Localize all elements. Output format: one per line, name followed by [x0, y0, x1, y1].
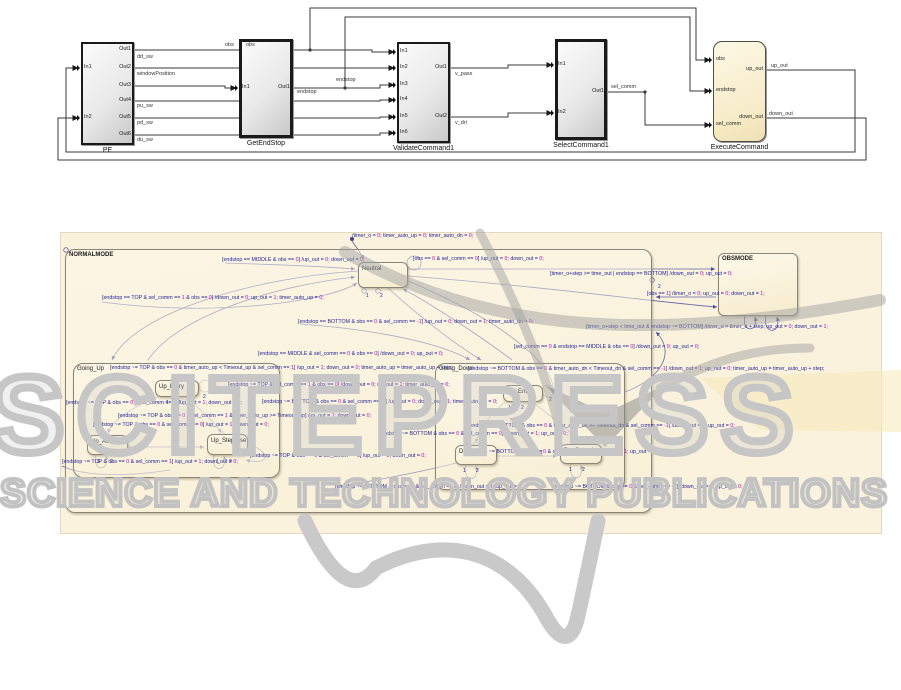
signal-label-du_sw: du_sw: [137, 138, 153, 144]
signal-label-pd_sw: pd_sw: [137, 121, 153, 127]
junction-number: 2: [203, 395, 206, 400]
signal-label-endstop: endstop: [297, 90, 317, 96]
transition-label: [endstop ~= TOP & obs == 0 & sel_comm ==…: [93, 423, 269, 428]
input-port-label: In4: [400, 97, 408, 103]
input-port-arrow: [709, 122, 712, 128]
transition-label: [endstop ~= BOTTOM & obs == 0 & timer_au…: [468, 367, 824, 372]
output-port-label: Out1: [119, 47, 131, 53]
input-port-label: In6: [400, 130, 408, 136]
transition-label: [endstop ~= TOP & obs == 0 & sel_comm ==…: [66, 401, 242, 406]
junction-number: 2: [549, 398, 552, 403]
junction-number: 1: [508, 406, 511, 411]
signal-label-sel_comm: sel_comm: [611, 85, 636, 91]
junction-number: 1: [97, 460, 100, 465]
input-port-arrow: [393, 65, 396, 71]
block-PE[interactable]: [81, 42, 134, 145]
input-port-label: In1: [558, 62, 566, 68]
state-Up_Auto[interactable]: [87, 435, 128, 455]
output-port-label: Out6: [119, 132, 131, 138]
input-port-arrow: [393, 49, 396, 55]
transition-label: [endstop ~= BOTTOM & obs == 0 & sel_comm…: [380, 432, 568, 437]
transition-label: [endstop ~= BOTTOM & obs == 0 & sel_comm…: [335, 485, 523, 490]
input-port-arrow: [393, 82, 396, 88]
input-port-label: In1: [242, 85, 250, 91]
input-port-label: sel_comm: [716, 122, 741, 128]
input-port-label: In2: [84, 115, 92, 121]
state-label-NORMALMODE: NORMALMODE: [69, 252, 113, 258]
transition-label: [endstop ~= TOP & obs == 0 & sel_comm ==…: [62, 460, 238, 465]
block-label-ValidateCommand1: ValidateCommand1: [393, 145, 454, 152]
junction-number: 1: [166, 401, 169, 406]
output-port-label: Out1: [592, 89, 604, 95]
state-label-OBSMODE: OBSMODE: [722, 256, 753, 262]
output-port-label: Out4: [119, 98, 131, 104]
input-port-arrow: [393, 130, 396, 136]
output-port-label: Out3: [119, 83, 131, 89]
input-port-arrow: [235, 85, 238, 91]
input-port-arrow: [709, 88, 712, 94]
junction-number: 1: [569, 468, 572, 473]
signal-label-obs: obs: [246, 43, 255, 49]
input-port-label: endstop: [716, 88, 736, 94]
transition-label: [endstop ~= BOTTOM & obs == 0 & sel_comm…: [553, 485, 743, 490]
junction-number: 1: [216, 460, 219, 465]
transition-label: [endstop == MIDDLE & obs == 0] /up_out =…: [222, 258, 365, 263]
signal-label-windowPosition: windowPosition: [137, 72, 175, 78]
block-label-ExecuteCommand: ExecuteCommand: [711, 144, 769, 151]
state-OBSMODE[interactable]: [718, 253, 798, 316]
input-port-arrow: [77, 65, 80, 71]
junction-number: 1: [540, 451, 543, 456]
state-label-Up_Entry: Up_Entry: [159, 384, 184, 390]
junction-number: 1: [366, 294, 369, 299]
input-port-label: In2: [400, 65, 408, 71]
junction-number: 2: [178, 401, 181, 406]
block-label-GetEndStop: GetEndStop: [247, 140, 285, 147]
transition-label: [endstop ~= TOP & sel_comm == 1 & obs ==…: [228, 383, 450, 388]
output-port-label: Out5: [119, 115, 131, 121]
output-port-label: Out2: [435, 114, 447, 120]
transition-label: [timer_o+step < time_out & endstop ~= BO…: [586, 325, 828, 330]
transition-label: [endstop == BOTTOM & obs == 0 & sel_comm…: [298, 320, 533, 325]
junction-number: 2: [582, 468, 585, 473]
transition-label: [endstop == TOP & sel_comm == 1 & obs ==…: [102, 296, 324, 301]
junction-number: 2: [476, 469, 479, 474]
input-port-arrow: [393, 114, 396, 120]
junction-number: 2: [658, 285, 661, 290]
state-label-Neutral: Neutral: [362, 266, 381, 272]
transition-label: [sel_comm == 0 & endstop == MIDDLE & obs…: [514, 345, 699, 350]
junction-number: 2: [110, 460, 113, 465]
input-port-arrow: [551, 62, 554, 68]
output-port-label: down_out: [739, 115, 763, 121]
input-port-arrow: [393, 97, 396, 103]
input-port-label: In5: [400, 114, 408, 120]
transition-label: [obs == 1] /timer_o = 0; up_out = 0; dow…: [647, 292, 765, 297]
state-label-Up_Stepwise: Up_Stepwise: [211, 438, 246, 444]
block-label-PE: PE: [103, 147, 112, 154]
input-port-arrow: [77, 115, 80, 121]
transition-label: [obs == 0 & sel_comm == 0] /up_out = 0; …: [413, 257, 544, 262]
junction-number: 1: [463, 469, 466, 474]
input-port-label: In2: [558, 110, 566, 116]
signal-label-endstop: endstop: [336, 78, 356, 84]
simulink-stateflow-screenshot: PEIn1In2Out1Out2Out3Out4Out5Out6GetEndSt…: [0, 0, 901, 690]
signal-label-dd_sw: dd_sw: [137, 55, 153, 61]
input-port-label: In3: [400, 82, 408, 88]
signal-label-up_out: up_out: [771, 64, 788, 70]
state-label-Going_Up: Going_Up: [77, 366, 104, 372]
block-ValidateCommand1[interactable]: [397, 42, 450, 143]
transition-label: [endstop == MIDDLE & sel_comm == 0 & obs…: [258, 352, 443, 357]
input-port-label: In1: [84, 65, 92, 71]
input-port-arrow: [709, 57, 712, 63]
transition-label: [endstop ~= BOTTOM & obs == 0 & timer_au…: [468, 424, 735, 429]
signal-label-down_out: down_out: [769, 112, 793, 118]
output-port-label: Out2: [119, 65, 131, 71]
junction-number: 2: [380, 294, 383, 299]
transition-label: [endstop ~= TOP & obs == 0 & sel_comm ==…: [118, 414, 371, 419]
transition-label: /timer_o = 0; timer_auto_up = 0; timer_a…: [352, 234, 473, 239]
signal-label-v_pass: v_pass: [455, 72, 472, 78]
input-port-label: obs: [716, 57, 725, 63]
transition-label: [endstop ~= BOTTOM & obs == 0 & sel_comm…: [262, 400, 497, 405]
state-label-Up_Auto: Up_Auto: [91, 439, 114, 445]
output-port-label: up_out: [746, 67, 763, 73]
input-port-label: In1: [400, 49, 408, 55]
output-port-label: Out1: [435, 65, 447, 71]
transition-label: [endstop ~= BOTTOM & obs == 0 & sel_comm…: [467, 450, 657, 455]
transition-label: [endstop ~= TOP & obs == 0 & timer_auto_…: [110, 366, 453, 371]
block-label-SelectCommand1: SelectCommand1: [553, 142, 609, 149]
output-port-label: Out1: [278, 85, 290, 91]
signal-label-pu_sw: pu_sw: [137, 104, 153, 110]
signal-label-v_dri: v_dri: [455, 121, 467, 127]
transition-label: [timer_o+step >= time_out | endstop == B…: [550, 272, 733, 277]
junction-number: 2: [229, 460, 232, 465]
junction-number: 2: [521, 406, 524, 411]
input-port-arrow: [551, 110, 554, 116]
state-label-Dn_Entry: Dn_Entry: [507, 389, 532, 395]
signal-label-obs: obs: [225, 43, 234, 49]
transition-label: [endstop ~= TOP & obs == 0 & sel_comm ==…: [250, 454, 426, 459]
